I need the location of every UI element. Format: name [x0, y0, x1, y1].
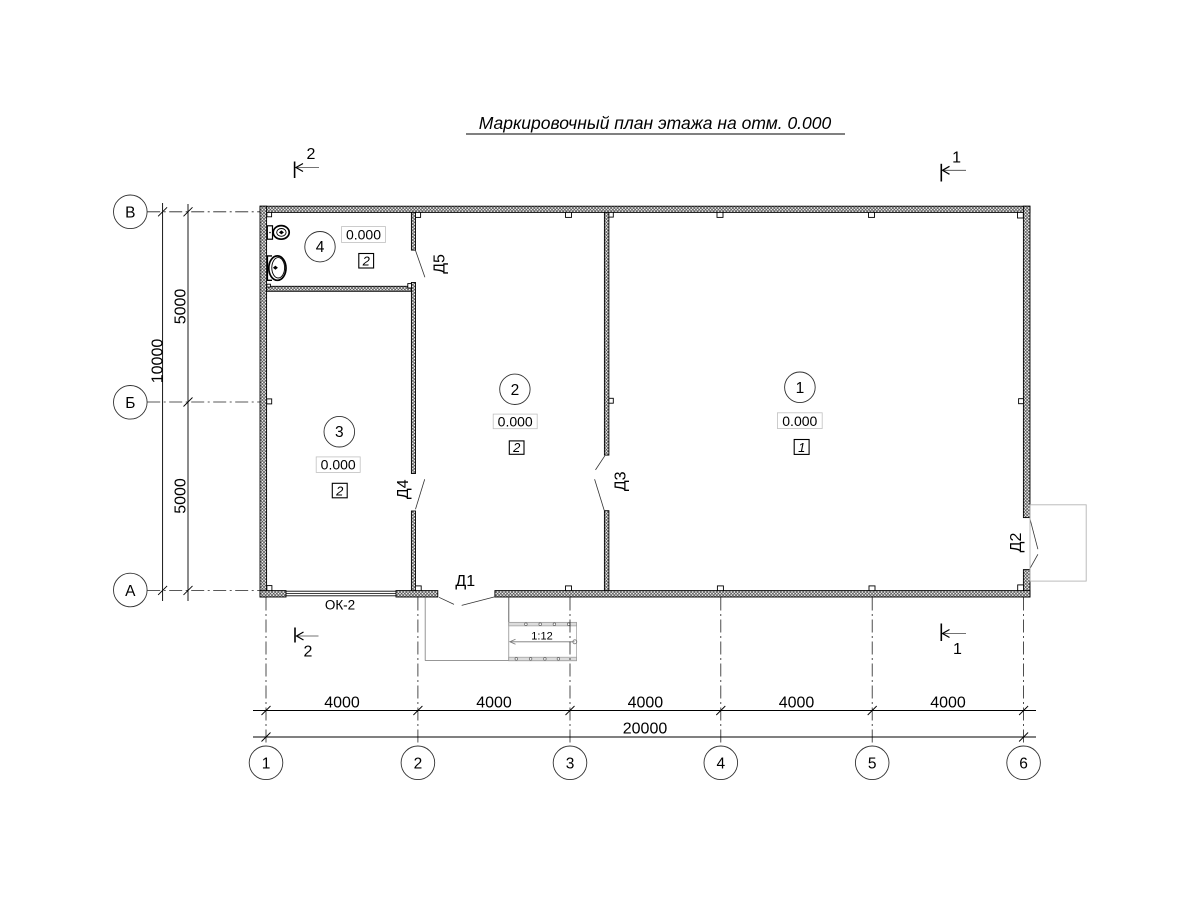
svg-text:2: 2: [335, 483, 344, 498]
svg-text:0.000: 0.000: [346, 227, 381, 243]
svg-text:3: 3: [566, 756, 575, 773]
svg-text:В: В: [125, 205, 135, 222]
svg-text:4: 4: [316, 239, 325, 256]
svg-text:Д2: Д2: [1008, 533, 1025, 553]
svg-text:10000: 10000: [149, 339, 166, 384]
svg-text:Д3: Д3: [612, 471, 629, 491]
svg-text:Д1: Д1: [455, 573, 475, 590]
svg-text:5: 5: [868, 756, 877, 773]
svg-text:А: А: [125, 583, 136, 600]
svg-text:1: 1: [953, 641, 962, 658]
svg-text:1: 1: [796, 380, 805, 397]
svg-text:1: 1: [262, 756, 271, 773]
svg-text:2: 2: [511, 382, 520, 399]
svg-text:4000: 4000: [324, 694, 360, 711]
svg-text:5000: 5000: [173, 289, 190, 325]
svg-text:2: 2: [307, 146, 316, 163]
svg-text:4000: 4000: [476, 694, 512, 711]
svg-text:Маркировочный план этажа на от: Маркировочный план этажа на отм. 0.000: [479, 113, 832, 133]
svg-text:0.000: 0.000: [498, 413, 533, 429]
svg-text:2: 2: [414, 756, 423, 773]
svg-text:Б: Б: [125, 395, 135, 412]
svg-text:4000: 4000: [779, 694, 815, 711]
svg-text:1:12: 1:12: [531, 631, 552, 643]
svg-text:6: 6: [1019, 756, 1028, 773]
svg-text:20000: 20000: [623, 720, 668, 737]
svg-text:Д4: Д4: [395, 479, 412, 499]
svg-text:0.000: 0.000: [782, 413, 817, 429]
svg-text:3: 3: [335, 424, 344, 441]
svg-text:Д5: Д5: [432, 254, 449, 274]
svg-text:4000: 4000: [628, 694, 664, 711]
svg-text:2: 2: [362, 254, 371, 269]
svg-text:1: 1: [798, 440, 805, 455]
svg-text:4: 4: [716, 756, 725, 773]
svg-text:2: 2: [304, 644, 313, 661]
svg-text:2: 2: [512, 440, 521, 455]
svg-text:ОК-2: ОК-2: [325, 598, 355, 613]
svg-text:0.000: 0.000: [321, 457, 356, 473]
svg-text:5000: 5000: [173, 478, 190, 514]
svg-text:4000: 4000: [930, 694, 966, 711]
svg-text:1: 1: [952, 150, 961, 167]
